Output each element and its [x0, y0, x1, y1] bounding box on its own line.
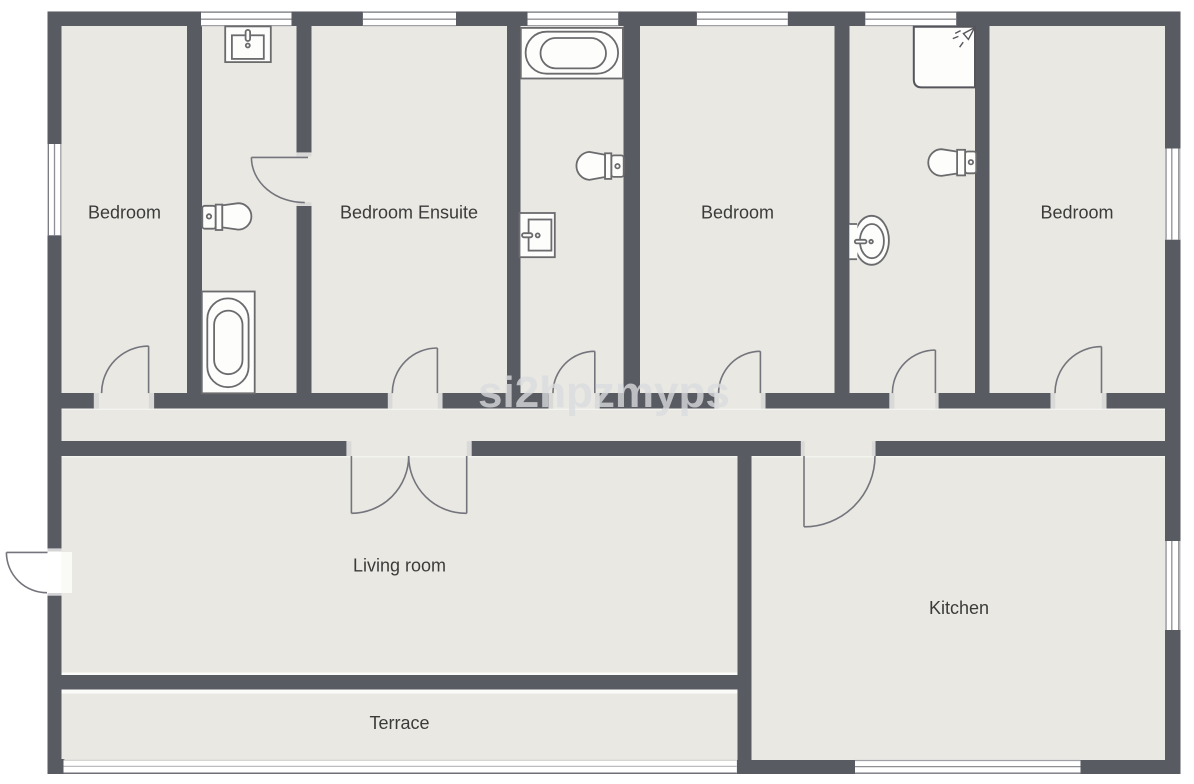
svg-text:Living room: Living room: [353, 555, 446, 575]
svg-text:Terrace: Terrace: [369, 713, 429, 733]
svg-text:Bedroom Ensuite: Bedroom Ensuite: [340, 203, 478, 223]
svg-text:Kitchen: Kitchen: [929, 598, 989, 618]
svg-text:Bedroom: Bedroom: [1040, 203, 1113, 223]
svg-text:Bedroom: Bedroom: [701, 203, 774, 223]
svg-text:Bedroom: Bedroom: [88, 203, 161, 223]
svg-text:si2hpzmyps: si2hpzmyps: [478, 368, 730, 417]
